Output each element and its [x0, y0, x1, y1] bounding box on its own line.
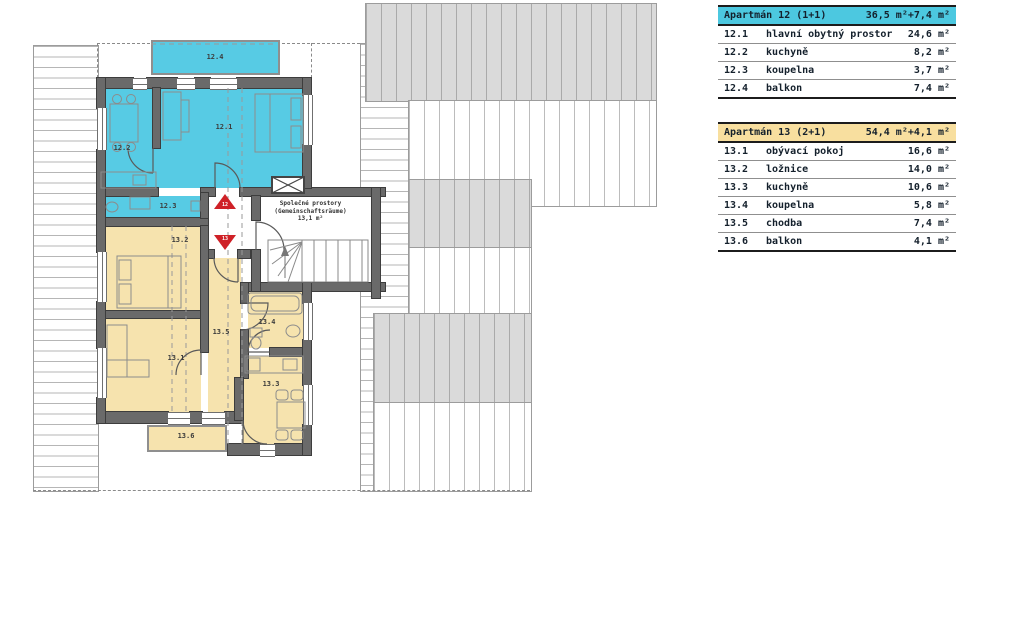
- common-room-name: Společné prostory: [249, 200, 372, 208]
- window: [260, 444, 275, 457]
- legend-table-apt12: Apartmán 12 (1+1) 36,5 m²+7,4 m² 12.1 hl…: [718, 5, 956, 99]
- legend-row: 13.1 obývací pokoj 16,6 m²: [718, 143, 956, 161]
- balcony-door: [210, 78, 237, 90]
- wall: [303, 425, 311, 455]
- room-number: 12.4: [718, 83, 766, 94]
- common-room-area: 13,1 m²: [249, 215, 372, 223]
- room-label-13-1: 13.1: [168, 354, 185, 362]
- room-name: hlavní obytný prostor: [766, 29, 908, 40]
- room-number: 13.3: [718, 182, 766, 193]
- room-area: 16,6 m²: [908, 146, 956, 157]
- room-name: kuchyně: [766, 47, 914, 58]
- window: [133, 78, 147, 90]
- wall: [237, 78, 311, 88]
- room-name: obývací pokoj: [766, 146, 908, 157]
- room-number: 12.3: [718, 65, 766, 76]
- roof-edge-dashed-bottom: [33, 490, 530, 491]
- legend-total-area: 36,5 m²+7,4 m²: [866, 10, 950, 21]
- roof-area-top-gray: [365, 3, 657, 102]
- room-label-12-4: 12.4: [207, 53, 224, 61]
- room-number: 13.2: [718, 164, 766, 175]
- room-12-3-bathroom: [105, 196, 201, 218]
- wall: [201, 193, 208, 218]
- room-label-13-2: 13.2: [172, 236, 189, 244]
- room-name: ložnice: [766, 164, 908, 175]
- roof-edge-dashed-right: [311, 43, 312, 78]
- window: [97, 348, 107, 398]
- wall: [303, 340, 311, 385]
- room-number: 13.5: [718, 218, 766, 229]
- wall: [228, 444, 260, 455]
- wall: [241, 283, 385, 291]
- room-area: 5,8 m²: [914, 200, 956, 211]
- legend-row: 13.2 ložnice 14,0 m²: [718, 161, 956, 179]
- room-number: 12.1: [718, 29, 766, 40]
- legend-row: 13.4 koupelna 5,8 m²: [718, 197, 956, 215]
- room-area: 7,4 m²: [914, 83, 956, 94]
- room-area: 4,1 m²: [914, 236, 956, 247]
- legend-row: 12.2 kuchyně 8,2 m²: [718, 44, 956, 62]
- legend-table-apt13: Apartmán 13 (2+1) 54,4 m²+4,1 m² 13.1 ob…: [718, 122, 956, 252]
- window: [177, 78, 195, 90]
- legend-title: Apartmán 13 (2+1): [724, 127, 826, 138]
- window: [97, 252, 107, 302]
- room-label-13-3: 13.3: [263, 380, 280, 388]
- roof-edge-dashed-left: [97, 43, 98, 78]
- wall: [147, 78, 177, 88]
- room-name: balkon: [766, 83, 914, 94]
- wall: [303, 283, 311, 303]
- room-label-13-5: 13.5: [213, 328, 230, 336]
- legend-row: 13.6 balkon 4,1 m²: [718, 233, 956, 252]
- wall: [97, 218, 208, 226]
- wall: [201, 226, 208, 352]
- wall: [303, 145, 311, 188]
- window: [303, 303, 313, 340]
- wall: [241, 330, 248, 378]
- wall: [97, 311, 208, 318]
- common-room-name-de: (Gemeinschaftsräume): [249, 208, 372, 216]
- common-room-caption: Společné prostory (Gemeinschaftsräume) 1…: [249, 200, 372, 223]
- legend-row: 12.3 koupelna 3,7 m²: [718, 62, 956, 80]
- wall: [195, 78, 210, 88]
- entrance-marker-apt12: 12: [214, 194, 236, 209]
- room-number: 13.4: [718, 200, 766, 211]
- wall: [97, 188, 158, 196]
- room-12-1-12-2-area: [105, 88, 303, 188]
- wall: [97, 302, 105, 348]
- legend-row: 13.3 kuchyně 10,6 m²: [718, 179, 956, 197]
- roof-area-low-gray: [373, 313, 532, 404]
- roof-area-mid-gray: [408, 179, 532, 249]
- wall: [241, 283, 248, 303]
- legend-total-area: 54,4 m²+4,1 m²: [866, 127, 950, 138]
- wall: [97, 150, 105, 252]
- room-number: 13.6: [718, 236, 766, 247]
- window: [168, 412, 190, 425]
- room-label-12-3: 12.3: [160, 202, 177, 210]
- legend-row: 12.4 balkon 7,4 m²: [718, 80, 956, 99]
- entrance-marker-label: 12: [214, 202, 236, 208]
- room-area: 8,2 m²: [914, 47, 956, 58]
- wall: [238, 250, 250, 258]
- room-13-1-living: [105, 318, 201, 412]
- wall: [190, 412, 202, 423]
- room-number: 13.1: [718, 146, 766, 157]
- wall: [97, 412, 168, 423]
- room-name: koupelna: [766, 65, 914, 76]
- window: [97, 108, 107, 150]
- room-number: 12.2: [718, 47, 766, 58]
- floor-plan-page: 12 13 12.4 12.2 12.1 12.3 13.2 13.1 13.5…: [0, 0, 1024, 643]
- window: [303, 385, 313, 425]
- entrance-marker-apt13: 13: [214, 235, 236, 250]
- room-label-12-2: 12.2: [114, 144, 131, 152]
- room-13-4-bath: [248, 291, 303, 348]
- roof-area-mid-white: [408, 247, 532, 315]
- room-label-12-1: 12.1: [216, 123, 233, 131]
- room-area: 14,0 m²: [908, 164, 956, 175]
- room-name: koupelna: [766, 200, 914, 211]
- room-area: 3,7 m²: [914, 65, 956, 76]
- room-name: balkon: [766, 236, 914, 247]
- legend-title: Apartmán 12 (1+1): [724, 10, 826, 21]
- room-area: 24,6 m²: [908, 29, 956, 40]
- balcony-door: [202, 412, 225, 425]
- wall: [240, 188, 385, 196]
- legend-row: 13.5 chodba 7,4 m²: [718, 215, 956, 233]
- wall: [303, 78, 311, 95]
- roof-area-low-white: [373, 402, 532, 492]
- legend-header-apt13: Apartmán 13 (2+1) 54,4 m²+4,1 m²: [718, 122, 956, 143]
- room-label-13-6: 13.6: [178, 432, 195, 440]
- room-name: kuchyně: [766, 182, 908, 193]
- room-area: 10,6 m²: [908, 182, 956, 193]
- room-13-3-kitchen: [243, 356, 303, 444]
- legend-header-apt12: Apartmán 12 (1+1) 36,5 m²+7,4 m²: [718, 5, 956, 26]
- room-name: chodba: [766, 218, 914, 229]
- entrance-marker-label: 13: [214, 236, 236, 242]
- roof-area-left: [33, 45, 99, 492]
- window: [303, 95, 313, 145]
- wall: [97, 78, 105, 108]
- wall: [252, 250, 260, 291]
- wall: [153, 88, 160, 148]
- wall: [372, 188, 380, 298]
- room-area: 7,4 m²: [914, 218, 956, 229]
- room-label-13-4: 13.4: [259, 318, 276, 326]
- wall: [97, 398, 105, 423]
- wall: [235, 378, 243, 420]
- legend-row: 12.1 hlavní obytný prostor 24,6 m²: [718, 26, 956, 44]
